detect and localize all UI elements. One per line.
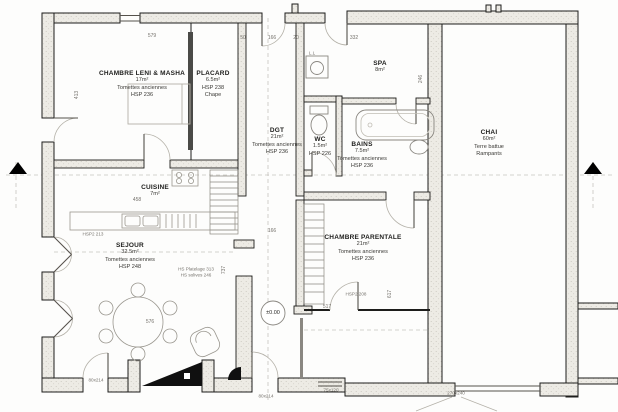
room-floor: Tomettes anciennes — [252, 142, 302, 149]
room-label-placard: PLACARD 6.5m² HSP 238 Chape — [196, 70, 229, 100]
room-label-wc: WC 1.5m² HSP 226 — [309, 136, 331, 158]
room-name: BAINS — [337, 141, 387, 148]
room-height: HSP 236 — [99, 92, 185, 99]
room-height: HSP 236 — [337, 163, 387, 170]
room-label-sejour: SEJOUR 32.5m² Tomettes anciennes HSP 248 — [105, 242, 155, 272]
sliding-door-panel — [188, 32, 193, 150]
hsp2-right-label: HSP2 208 — [346, 292, 367, 297]
room-height: HSP 236 — [252, 149, 302, 156]
cooktop — [172, 170, 198, 186]
room-area: 7.5m² — [337, 148, 387, 155]
room-name: WC — [309, 136, 331, 143]
dining-table — [99, 283, 177, 361]
dimension-617: 617 — [387, 290, 393, 298]
room-name: DGT — [252, 127, 302, 134]
garden-walls — [578, 303, 618, 384]
hsp2-left-label: HSP2 213 — [83, 232, 104, 237]
room-label-bains: BAINS 7.5m² Tomettes anciennes HSP 236 — [337, 141, 387, 171]
toilet — [310, 106, 328, 135]
washbasin — [410, 140, 428, 154]
dimension-332: 332 — [350, 35, 358, 41]
room-name: CHAMBRE LENI & MASHA — [99, 70, 185, 77]
room-area: 7m² — [141, 191, 169, 198]
room-floor: Chape — [196, 92, 229, 99]
dimension-246: 246 — [418, 75, 424, 83]
room-name: CHAI — [474, 129, 504, 136]
dimension-166-mid: 166 — [268, 228, 276, 234]
level-marker-label: ±0.00 — [266, 310, 280, 316]
room-area: 21m² — [252, 134, 302, 141]
room-label-cuisine: CUISINE 7m² — [141, 184, 169, 199]
room-area: 6.5m² — [196, 77, 229, 84]
washing-machine — [306, 56, 328, 78]
exterior-walls — [42, 4, 578, 397]
room-floor: Tomettes anciennes — [324, 249, 401, 256]
room-label-chambre-leni-masha: CHAMBRE LENI & MASHA 17m² Tomettes ancie… — [99, 70, 185, 100]
thin-partition — [300, 318, 303, 378]
stairs-kitchen — [210, 170, 238, 234]
north-arrow-right — [584, 162, 602, 174]
room-area: 32.5m² — [105, 249, 155, 256]
room-name: CUISINE — [141, 184, 169, 191]
room-note: Rampants — [474, 151, 504, 158]
room-area: 8m² — [373, 67, 386, 74]
dimension-458: 458 — [133, 197, 141, 203]
dimension-166-top: 166 — [268, 35, 276, 41]
armchair — [188, 325, 223, 360]
room-name: SEJOUR — [105, 242, 155, 249]
room-area: 60m² — [474, 136, 504, 143]
room-label-chambre-parentale: CHAMBRE PARENTALE 21m² Tomettes ancienne… — [324, 234, 401, 264]
room-label-chai: CHAI 60m² Terre battue Rampants — [474, 129, 504, 159]
room-name: CHAMBRE PARENTALE — [324, 234, 401, 241]
room-label-spa: SPA 8m² — [373, 60, 386, 75]
north-arrow-left — [9, 162, 27, 174]
room-floor: Terre battue — [474, 144, 504, 151]
entry-door-size-label: 80x214 — [258, 394, 273, 399]
dimension-576: 576 — [146, 319, 154, 325]
room-height: HSP 236 — [324, 256, 401, 263]
stairs-parentale — [304, 204, 324, 304]
room-label-dgt: DGT 21m² Tomettes anciennes HSP 236 — [252, 127, 302, 157]
room-floor: Tomettes anciennes — [337, 156, 387, 163]
platelage-label: HS Platelage 313 — [178, 267, 214, 272]
room-area: 21m² — [324, 241, 401, 248]
sejour-door-size-label: 80x214 — [88, 378, 103, 383]
room-floor: Tomettes anciennes — [99, 85, 185, 92]
dimension-517: 517 — [323, 304, 331, 310]
dimension-579: 579 — [148, 33, 156, 39]
room-floor: Tomettes anciennes — [105, 257, 155, 264]
leader-lines — [416, 397, 497, 411]
floor-plan-drawing — [0, 0, 618, 412]
room-height: HSP 248 — [105, 264, 155, 271]
floor-plan: CHAMBRE LENI & MASHA 17m² Tomettes ancie… — [0, 0, 618, 412]
room-area: 1.5m² — [309, 143, 331, 150]
solives-label: HS solives 246 — [181, 273, 212, 278]
bathtub — [356, 110, 434, 140]
dimension-737: 737 — [221, 266, 227, 274]
washing-machine-label: L.L — [309, 51, 315, 56]
room-area: 17m² — [99, 77, 185, 84]
dashed-axes — [6, 18, 612, 400]
room-name: PLACARD — [196, 70, 229, 77]
room-height: HSP 238 — [196, 85, 229, 92]
room-name: SPA — [373, 60, 386, 67]
dimension-50: 50 — [240, 35, 246, 41]
dimension-20: 20 — [293, 35, 299, 41]
terrace-window-size-label: 75x120 — [323, 388, 338, 393]
dimension-413: 413 — [74, 91, 80, 99]
opening-size-label: 270x240 — [447, 391, 465, 396]
room-height: HSP 226 — [309, 151, 331, 158]
